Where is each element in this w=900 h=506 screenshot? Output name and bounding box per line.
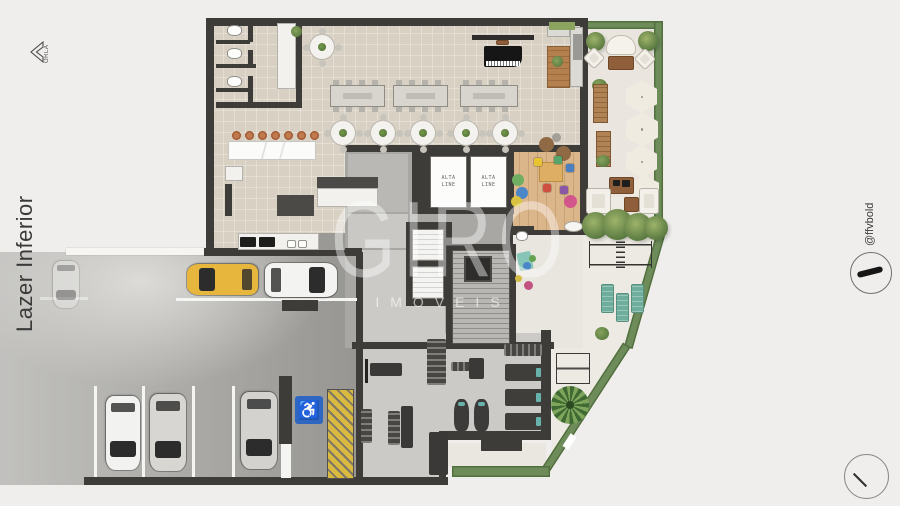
- kitchen-island: [317, 188, 378, 207]
- coffee-table: [608, 56, 634, 70]
- garden-bench: [593, 84, 608, 123]
- toy-ball: [523, 262, 531, 270]
- dining-table: [460, 85, 518, 107]
- cooktop: [259, 237, 275, 247]
- bar-stool: [245, 131, 254, 140]
- table-plant: [552, 56, 563, 67]
- leg-machine: [429, 432, 448, 475]
- bar-stool: [284, 131, 293, 140]
- planter: [549, 22, 575, 30]
- bar-stool: [258, 131, 267, 140]
- gym-mat: [401, 406, 413, 448]
- garden-tree: [644, 216, 668, 240]
- wc-part-1: [216, 40, 250, 44]
- round-table: [309, 34, 335, 60]
- grass-bottom: [452, 466, 550, 477]
- car-ghost: [53, 261, 79, 308]
- garden-table: [624, 197, 639, 212]
- kids-chair: [554, 156, 562, 164]
- weight-rack: [361, 409, 372, 443]
- dining-table: [330, 85, 385, 107]
- round-table: [370, 120, 396, 146]
- bar-stool: [232, 131, 241, 140]
- curved-sofa: [606, 35, 636, 55]
- pen-icon: [850, 252, 892, 294]
- wc-wall-bottom: [216, 102, 302, 108]
- service-lift-1: [412, 229, 444, 261]
- handicap-sign: ♿: [295, 396, 323, 424]
- bar-stool: [310, 131, 319, 140]
- wc-wall-b: [248, 50, 253, 66]
- compass-icon: [844, 454, 889, 499]
- kids-chair: [566, 164, 574, 172]
- arrow-left-icon: [29, 40, 45, 64]
- wc-toilet-1: [227, 25, 242, 36]
- no-parking-hatch: [327, 389, 354, 479]
- pen-nib: [857, 266, 884, 278]
- service-lift-2: [412, 266, 444, 299]
- grass-top: [586, 21, 662, 29]
- climbing-frame: [589, 241, 652, 268]
- kitchen-counter-dark: [277, 195, 314, 216]
- bar-counter: [228, 141, 316, 160]
- bench-press: [370, 363, 402, 376]
- piano-bench: [496, 40, 509, 45]
- wc-toilet-3: [227, 76, 242, 87]
- toy-ball: [529, 255, 536, 262]
- parking-wall-white: [66, 248, 206, 255]
- stall-line: [232, 386, 235, 477]
- sun-lounger: [601, 284, 614, 313]
- treadmill: [505, 413, 542, 430]
- dining-table: [393, 85, 448, 107]
- pillar: [279, 376, 292, 444]
- kitchen-sink: [287, 240, 296, 248]
- planter: [596, 155, 610, 167]
- gym-platform: [481, 437, 522, 451]
- stall-line: [142, 386, 145, 477]
- car-silver: [150, 394, 186, 471]
- hall-floor: [348, 214, 408, 248]
- bush: [595, 327, 609, 340]
- stall-line: [192, 386, 195, 477]
- elevator-2: ALTA LINE: [470, 156, 507, 208]
- plant-pot: [291, 26, 302, 37]
- car-yellow: [187, 264, 258, 295]
- wc-part-3: [216, 88, 250, 92]
- cooktop: [240, 237, 256, 247]
- parking-wall-right: [356, 252, 363, 484]
- sun-lounger: [631, 284, 644, 313]
- spin-bike: [474, 399, 489, 431]
- credit-handle: @ffvbold: [864, 190, 876, 246]
- sun-lounger: [616, 293, 629, 322]
- bar-stool: [271, 131, 280, 140]
- round-table: [453, 120, 479, 146]
- bath-stub-wall: [512, 226, 534, 230]
- pouf: [564, 195, 577, 208]
- side-table: [552, 133, 561, 142]
- orla-direction-marker: ORLA: [29, 40, 53, 64]
- bbq-grill: [613, 180, 620, 186]
- floor-plan-render: ALTA LINEALTA LINE♿ GIRO IMÓVEIS Lazer I…: [0, 0, 900, 506]
- wc-wall-a: [248, 20, 253, 42]
- dumbbell-rack: [504, 344, 542, 356]
- wc-wall-c: [248, 76, 253, 104]
- pouf: [511, 196, 522, 207]
- palm-tree: [551, 386, 589, 424]
- kitchen-sink: [298, 240, 307, 248]
- barbell-rack: [388, 411, 400, 445]
- garden-armchair: [639, 188, 659, 214]
- pouf: [512, 174, 524, 186]
- wall-top: [206, 18, 588, 26]
- kids-chair: [543, 184, 551, 192]
- pillar: [282, 300, 318, 311]
- car-silver: [241, 392, 277, 469]
- wc-toilet-2: [227, 48, 242, 59]
- bath-toilet: [516, 231, 528, 241]
- cable-machine: [469, 358, 484, 379]
- page-title: Lazer Inferior: [12, 180, 38, 332]
- gym-wall-right: [541, 330, 551, 440]
- grand-piano: [484, 46, 522, 67]
- kitchen-island-top: [317, 177, 378, 188]
- car-white: [265, 263, 337, 297]
- toy-ball: [524, 281, 533, 290]
- squat-rack: [427, 339, 446, 385]
- stall-line: [94, 386, 97, 477]
- stair-void: [464, 256, 492, 282]
- bar-stool: [297, 131, 306, 140]
- round-table: [492, 120, 518, 146]
- wall-bottom: [84, 477, 448, 485]
- kids-table: [539, 162, 563, 182]
- communal-table: [547, 46, 570, 88]
- kids-chair: [560, 186, 568, 194]
- toy-ball: [515, 275, 522, 282]
- kitchen-counter-gray: [319, 233, 345, 250]
- barbell: [365, 359, 368, 383]
- stall-line: [281, 444, 291, 478]
- round-table: [410, 120, 436, 146]
- lane-line: [176, 298, 357, 301]
- garden-armchair: [586, 188, 611, 214]
- kitchen-stub-wall: [225, 184, 232, 216]
- wall-left: [206, 18, 214, 254]
- orla-label: ORLA: [44, 41, 50, 63]
- pergola: [556, 353, 590, 384]
- support-counter: [573, 34, 582, 60]
- treadmill: [505, 364, 542, 381]
- compass-needle: [853, 473, 867, 487]
- spin-bike: [454, 399, 469, 431]
- treadmill: [505, 389, 542, 406]
- sink-station: [225, 166, 243, 181]
- bench-oval: [564, 221, 583, 232]
- terrace-tree: [638, 31, 658, 51]
- bbq-grill: [622, 180, 630, 187]
- elevator-1: ALTA LINE: [430, 156, 467, 208]
- car-white: [106, 396, 140, 470]
- round-table: [330, 120, 356, 146]
- kids-chair: [534, 158, 542, 166]
